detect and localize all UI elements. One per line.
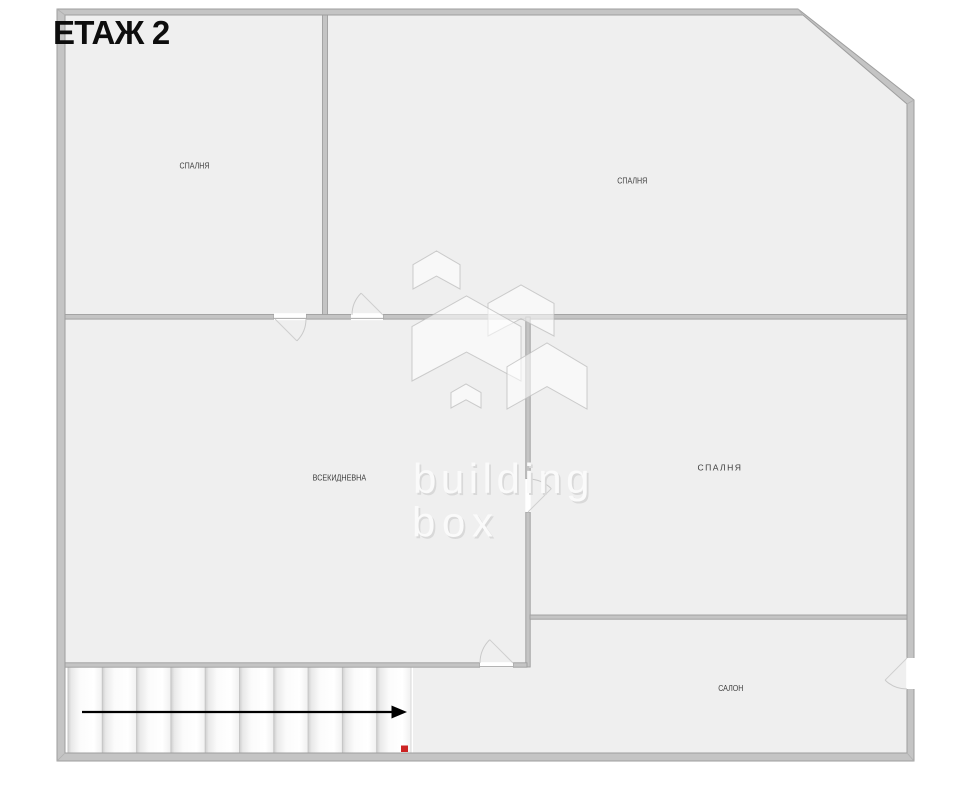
svg-text:ЕТАЖ 2: ЕТАЖ 2 (53, 14, 170, 51)
svg-text:box: box (412, 499, 493, 546)
svg-text:СПАЛНЯ: СПАЛНЯ (180, 161, 210, 171)
svg-text:СПАЛНЯ: СПАЛНЯ (617, 176, 647, 186)
svg-text:ВСЕКИДНЕВНА: ВСЕКИДНЕВНА (313, 473, 367, 483)
svg-text:САЛОН: САЛОН (718, 683, 743, 693)
